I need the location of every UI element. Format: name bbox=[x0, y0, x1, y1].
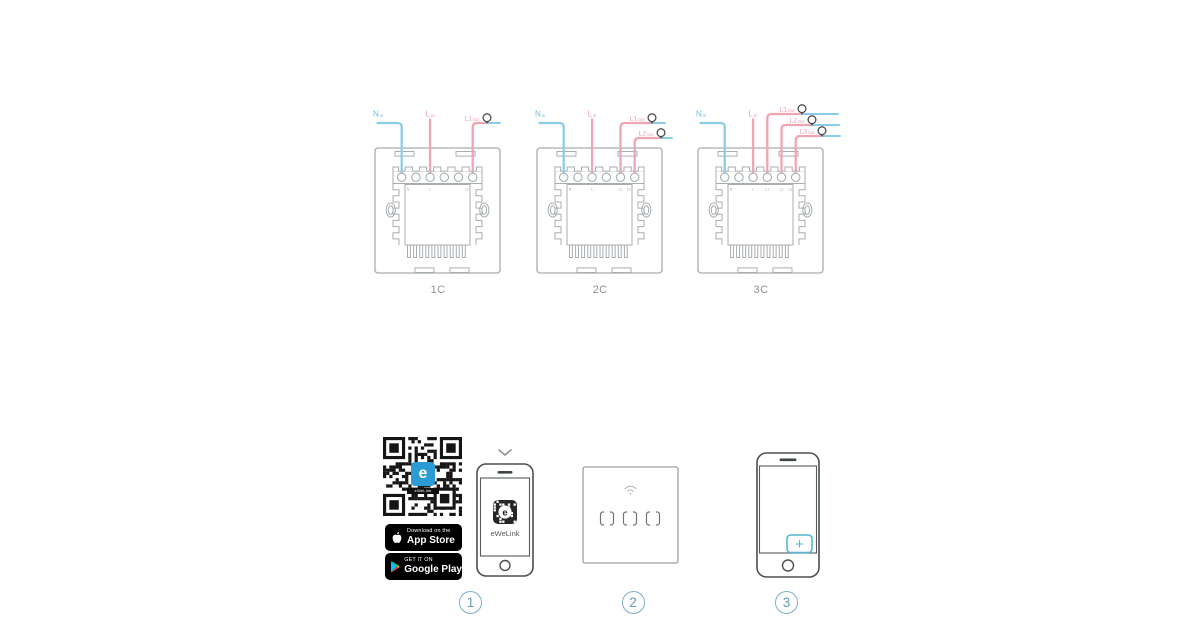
add-device-button: + bbox=[787, 535, 812, 553]
switch-body bbox=[375, 148, 500, 273]
panel-frame bbox=[583, 467, 678, 563]
wire-label-l: Lin bbox=[588, 110, 597, 120]
terminal-mark: L2 bbox=[780, 187, 784, 191]
terminal-2 bbox=[574, 173, 582, 181]
terminal-mark: L3 bbox=[788, 187, 792, 191]
terminal-6 bbox=[631, 173, 639, 181]
wire-label-l: Lin bbox=[749, 110, 758, 120]
app-store-badge: Download on the App Store bbox=[385, 524, 462, 551]
terminal-4 bbox=[440, 173, 448, 181]
switch-body bbox=[537, 148, 662, 273]
appstore-line1: Download on the bbox=[407, 528, 455, 535]
terminal-mark: L1 bbox=[465, 187, 469, 191]
google-play-badge: GET IT ON Google Play bbox=[385, 553, 462, 580]
terminal-mark: L2 bbox=[627, 187, 631, 191]
terminal-mark: L1 bbox=[765, 187, 769, 191]
app-label: eWeLink bbox=[490, 529, 519, 538]
wire-label-l2: L2Out bbox=[639, 131, 655, 138]
terminal-1 bbox=[560, 173, 568, 181]
wiring-diagram-1c: NLL1NinLinL1Out bbox=[353, 95, 523, 305]
ewelink-app-icon: e bbox=[493, 500, 517, 524]
terminal-mark: L bbox=[752, 187, 754, 191]
terminal-6 bbox=[792, 173, 800, 181]
wire-label-n: Nin bbox=[696, 110, 707, 120]
plus-icon: + bbox=[795, 536, 804, 553]
phone-step3: + bbox=[753, 449, 823, 583]
wiring-diagram-2c: NLL1L2NinLinL1OutL2Out bbox=[515, 95, 685, 305]
appstore-line2: App Store bbox=[407, 535, 455, 546]
terminal-4 bbox=[763, 173, 771, 181]
diagram-caption-3c: 3C bbox=[676, 284, 846, 296]
ewelink-logo-overlay: e bbox=[411, 462, 435, 486]
phone-step1: e eWeLink bbox=[474, 444, 536, 580]
chevron-down-icon bbox=[499, 450, 511, 455]
diagram-caption-2c: 2C bbox=[515, 284, 685, 296]
terminal-1 bbox=[398, 173, 406, 181]
google-play-icon bbox=[391, 559, 400, 575]
apple-icon bbox=[391, 530, 403, 545]
speaker bbox=[498, 471, 513, 474]
wire-label-n: Nin bbox=[373, 110, 384, 120]
speaker bbox=[780, 459, 797, 462]
app-icon-letter: e bbox=[502, 508, 507, 519]
step-number-1: 1 bbox=[459, 591, 482, 614]
terminal-4 bbox=[602, 173, 610, 181]
terminal-mark: L1 bbox=[619, 187, 623, 191]
instruction-sheet: NLL1NinLinL1Out NLL1L2NinLinL1OutL2Out N… bbox=[0, 0, 1200, 630]
step-number-2: 2 bbox=[622, 591, 645, 614]
terminal-3 bbox=[749, 173, 757, 181]
wire-label-l1: L1Out bbox=[465, 116, 481, 123]
terminal-1 bbox=[721, 173, 729, 181]
terminal-6 bbox=[469, 173, 477, 181]
diagram-caption-1c: 1C bbox=[353, 284, 523, 296]
wiring-diagram-3c: NLL1L2L3NinLinL1OutL2OutL3Out bbox=[676, 95, 846, 305]
wire-label-l3: L3Out bbox=[800, 129, 816, 136]
terminal-3 bbox=[588, 173, 596, 181]
terminal-2 bbox=[412, 173, 420, 181]
terminal-5 bbox=[616, 173, 624, 181]
terminal-mark: L bbox=[429, 187, 431, 191]
wire-label-l1: L1Out bbox=[780, 107, 796, 114]
terminal-5 bbox=[454, 173, 462, 181]
wire-label-l: Lin bbox=[426, 110, 435, 120]
wire-label-l2: L2Out bbox=[790, 118, 806, 125]
wire-label-l1: L1Out bbox=[630, 116, 646, 123]
googleplay-line1: GET IT ON bbox=[404, 557, 462, 564]
terminal-mark: L bbox=[591, 187, 593, 191]
qr-logo-caption: eWeLink bbox=[407, 488, 439, 494]
step-number-3: 3 bbox=[775, 591, 798, 614]
wall-switch-panel bbox=[580, 464, 682, 566]
terminal-5 bbox=[777, 173, 785, 181]
googleplay-line2: Google Play bbox=[404, 564, 462, 575]
terminal-3 bbox=[426, 173, 434, 181]
wire-label-n: Nin bbox=[535, 110, 546, 120]
terminal-2 bbox=[735, 173, 743, 181]
switch-body bbox=[698, 148, 823, 273]
qr-code: e eWeLink bbox=[383, 437, 462, 516]
